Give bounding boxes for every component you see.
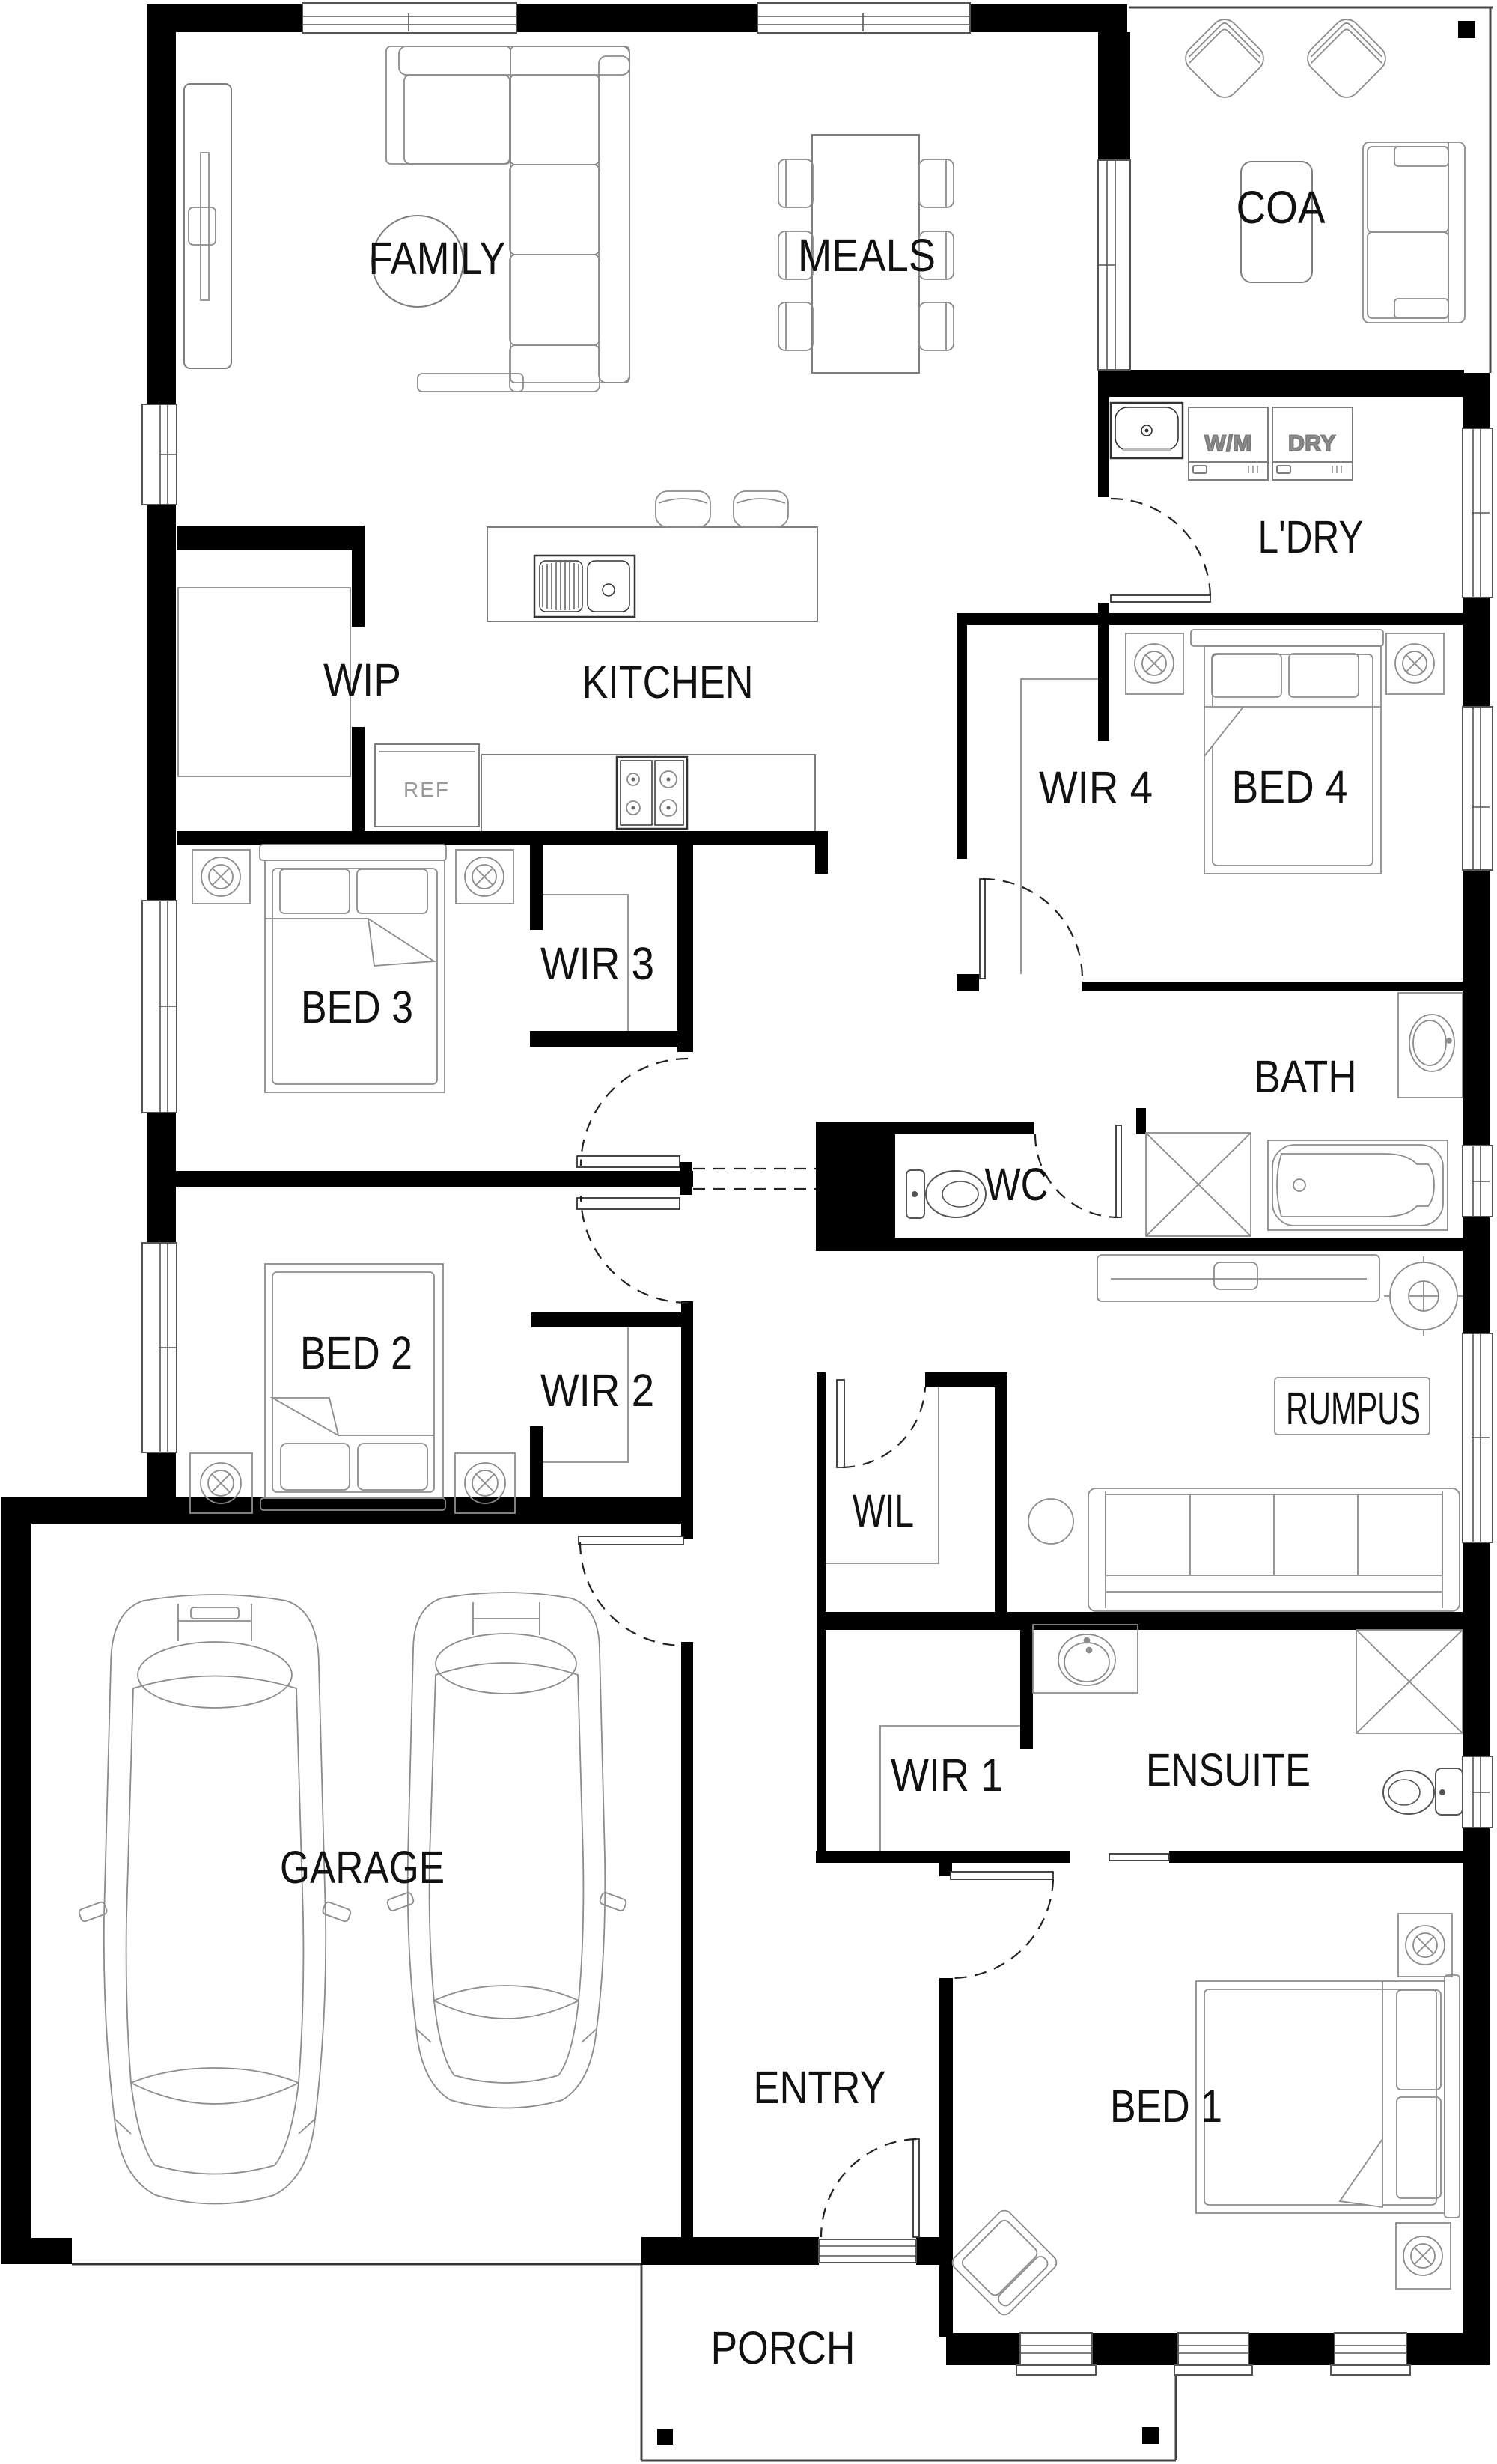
svg-text:REF: REF	[403, 778, 450, 801]
svg-text:ENTRY: ENTRY	[754, 2062, 886, 2113]
svg-text:BED 1: BED 1	[1110, 2081, 1222, 2132]
svg-text:GARAGE: GARAGE	[280, 1842, 445, 1893]
svg-text:COA: COA	[1237, 182, 1326, 233]
svg-text:PORCH: PORCH	[711, 2322, 856, 2373]
svg-text:BED 3: BED 3	[301, 982, 413, 1032]
svg-text:ENSUITE: ENSUITE	[1146, 1744, 1311, 1795]
svg-text:W/M: W/M	[1204, 431, 1251, 456]
svg-text:WIR 2: WIR 2	[540, 1365, 654, 1416]
svg-text:WIR 4: WIR 4	[1039, 762, 1153, 813]
svg-text:BATH: BATH	[1254, 1051, 1357, 1102]
svg-text:MEALS: MEALS	[798, 230, 936, 281]
svg-text:BED 4: BED 4	[1232, 761, 1348, 812]
svg-text:FAMILY: FAMILY	[369, 233, 506, 284]
svg-text:WIR 3: WIR 3	[540, 938, 654, 989]
svg-text:RUMPUS: RUMPUS	[1286, 1383, 1421, 1434]
svg-text:DRY: DRY	[1288, 431, 1336, 456]
svg-text:WIP: WIP	[323, 654, 401, 705]
svg-text:L'DRY: L'DRY	[1258, 511, 1364, 562]
svg-text:KITCHEN: KITCHEN	[582, 657, 754, 708]
svg-text:WC: WC	[985, 1159, 1049, 1210]
svg-text:WIR 1: WIR 1	[891, 1750, 1003, 1801]
svg-text:WIL: WIL	[853, 1485, 914, 1536]
svg-text:BED 2: BED 2	[300, 1327, 412, 1378]
